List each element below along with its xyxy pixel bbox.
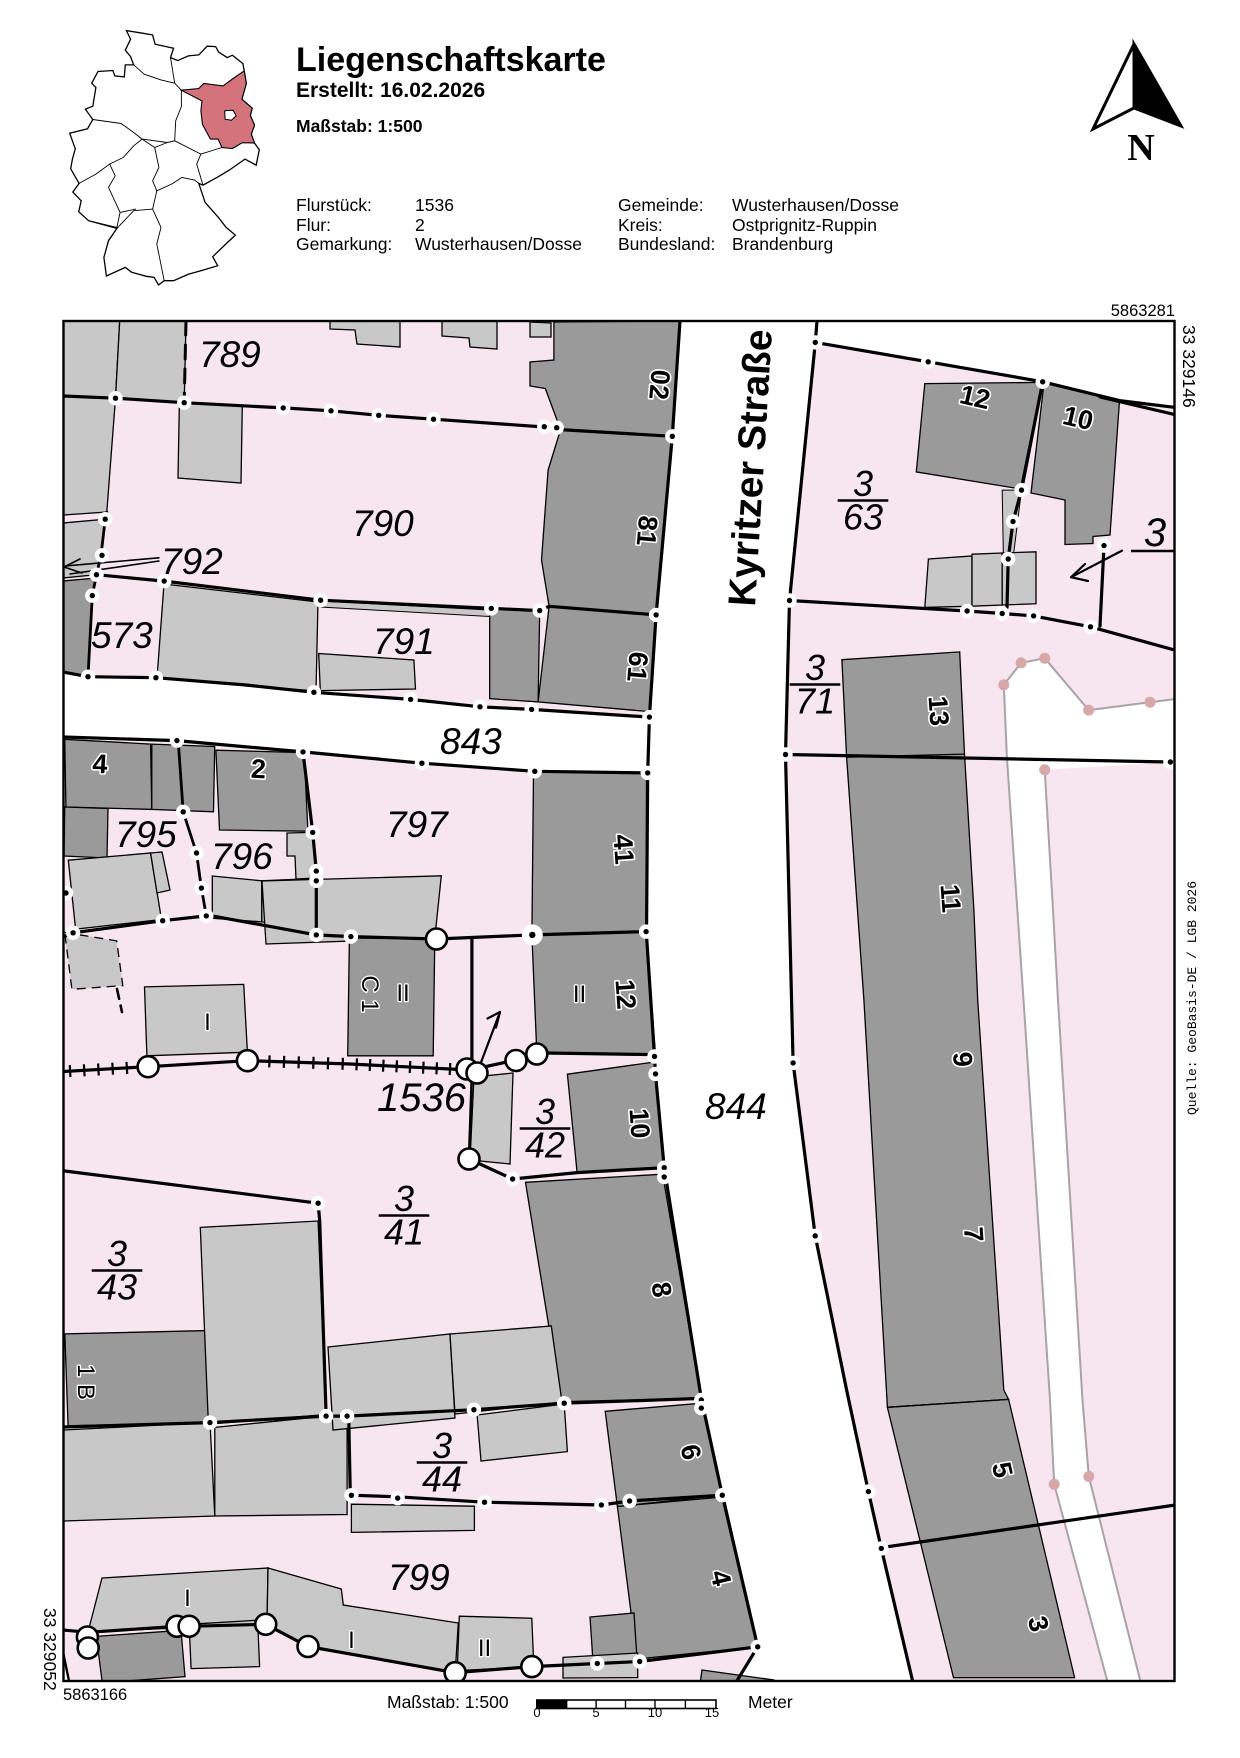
svg-text:791: 791 [373,621,435,662]
svg-text:44: 44 [422,1459,462,1500]
svg-text:33 329052: 33 329052 [40,1608,60,1691]
svg-text:Brandenburg: Brandenburg [732,234,833,254]
svg-text:Gemeinde:: Gemeinde: [618,195,704,215]
svg-text:71: 71 [795,681,835,722]
svg-text:N: N [1127,127,1154,169]
svg-text:12: 12 [609,978,641,1010]
svg-text:3: 3 [1144,511,1166,555]
svg-text:Ostprignitz-Ruppin: Ostprignitz-Ruppin [732,215,877,235]
svg-text:573: 573 [91,615,153,656]
svg-text:4: 4 [92,749,109,780]
svg-text:1536: 1536 [377,1076,467,1120]
svg-text:II: II [396,980,409,1007]
svg-text:I: I [184,1585,191,1612]
svg-text:33 329146: 33 329146 [1179,325,1199,408]
svg-text:15: 15 [705,1705,719,1720]
svg-text:13: 13 [922,695,954,727]
svg-text:02: 02 [643,369,676,402]
svg-text:Maßstab: 1:500: Maßstab: 1:500 [296,116,423,136]
svg-text:41: 41 [607,833,639,865]
svg-text:Quelle: GeoBasis-DE / LGB 2026: Quelle: GeoBasis-DE / LGB 2026 [1185,881,1200,1115]
svg-text:Wusterhausen/Dosse: Wusterhausen/Dosse [415,234,582,254]
svg-text:1536: 1536 [415,195,454,215]
svg-text:5863281: 5863281 [1111,302,1175,320]
svg-text:Gemarkung:: Gemarkung: [296,234,392,254]
svg-text:799: 799 [388,1557,450,1598]
svg-text:796: 796 [211,836,273,877]
svg-text:844: 844 [705,1086,767,1127]
svg-text:790: 790 [352,503,414,544]
svg-text:5: 5 [592,1705,599,1720]
svg-text:1 B: 1 B [72,1364,99,1400]
svg-text:Flur:: Flur: [296,215,331,235]
svg-text:843: 843 [440,721,502,762]
svg-text:C 1: C 1 [356,975,383,1012]
svg-text:795: 795 [115,814,177,855]
svg-text:Bundesland:: Bundesland: [618,234,715,254]
svg-text:789: 789 [199,334,261,375]
svg-text:42: 42 [525,1125,565,1166]
svg-text:Erstellt: 16.02.2026: Erstellt: 16.02.2026 [296,79,485,102]
svg-text:43: 43 [97,1267,137,1308]
svg-text:I: I [348,1627,355,1654]
svg-text:I: I [204,1009,211,1036]
svg-text:5863166: 5863166 [63,1686,127,1704]
svg-text:2: 2 [415,215,425,235]
svg-text:Maßstab: 1:500: Maßstab: 1:500 [387,1692,509,1712]
svg-text:792: 792 [161,541,223,582]
svg-text:Wusterhausen/Dosse: Wusterhausen/Dosse [732,195,899,215]
svg-text:81: 81 [631,515,664,548]
svg-text:63: 63 [843,497,883,538]
svg-text:7: 7 [958,1226,989,1243]
svg-text:61: 61 [621,651,654,684]
svg-text:Meter: Meter [748,1692,793,1712]
svg-text:Liegenschaftskarte: Liegenschaftskarte [296,41,606,79]
svg-text:0: 0 [533,1705,540,1720]
svg-text:Kreis:: Kreis: [618,215,663,235]
svg-text:11: 11 [935,883,967,914]
svg-text:Flurstück:: Flurstück: [296,195,372,215]
svg-text:9: 9 [947,1051,978,1068]
svg-text:II: II [573,981,586,1008]
svg-text:10: 10 [648,1705,662,1720]
svg-text:797: 797 [386,804,449,845]
svg-text:2: 2 [250,754,267,785]
svg-text:II: II [478,1635,491,1662]
svg-text:41: 41 [384,1212,424,1253]
svg-text:10: 10 [623,1107,655,1139]
